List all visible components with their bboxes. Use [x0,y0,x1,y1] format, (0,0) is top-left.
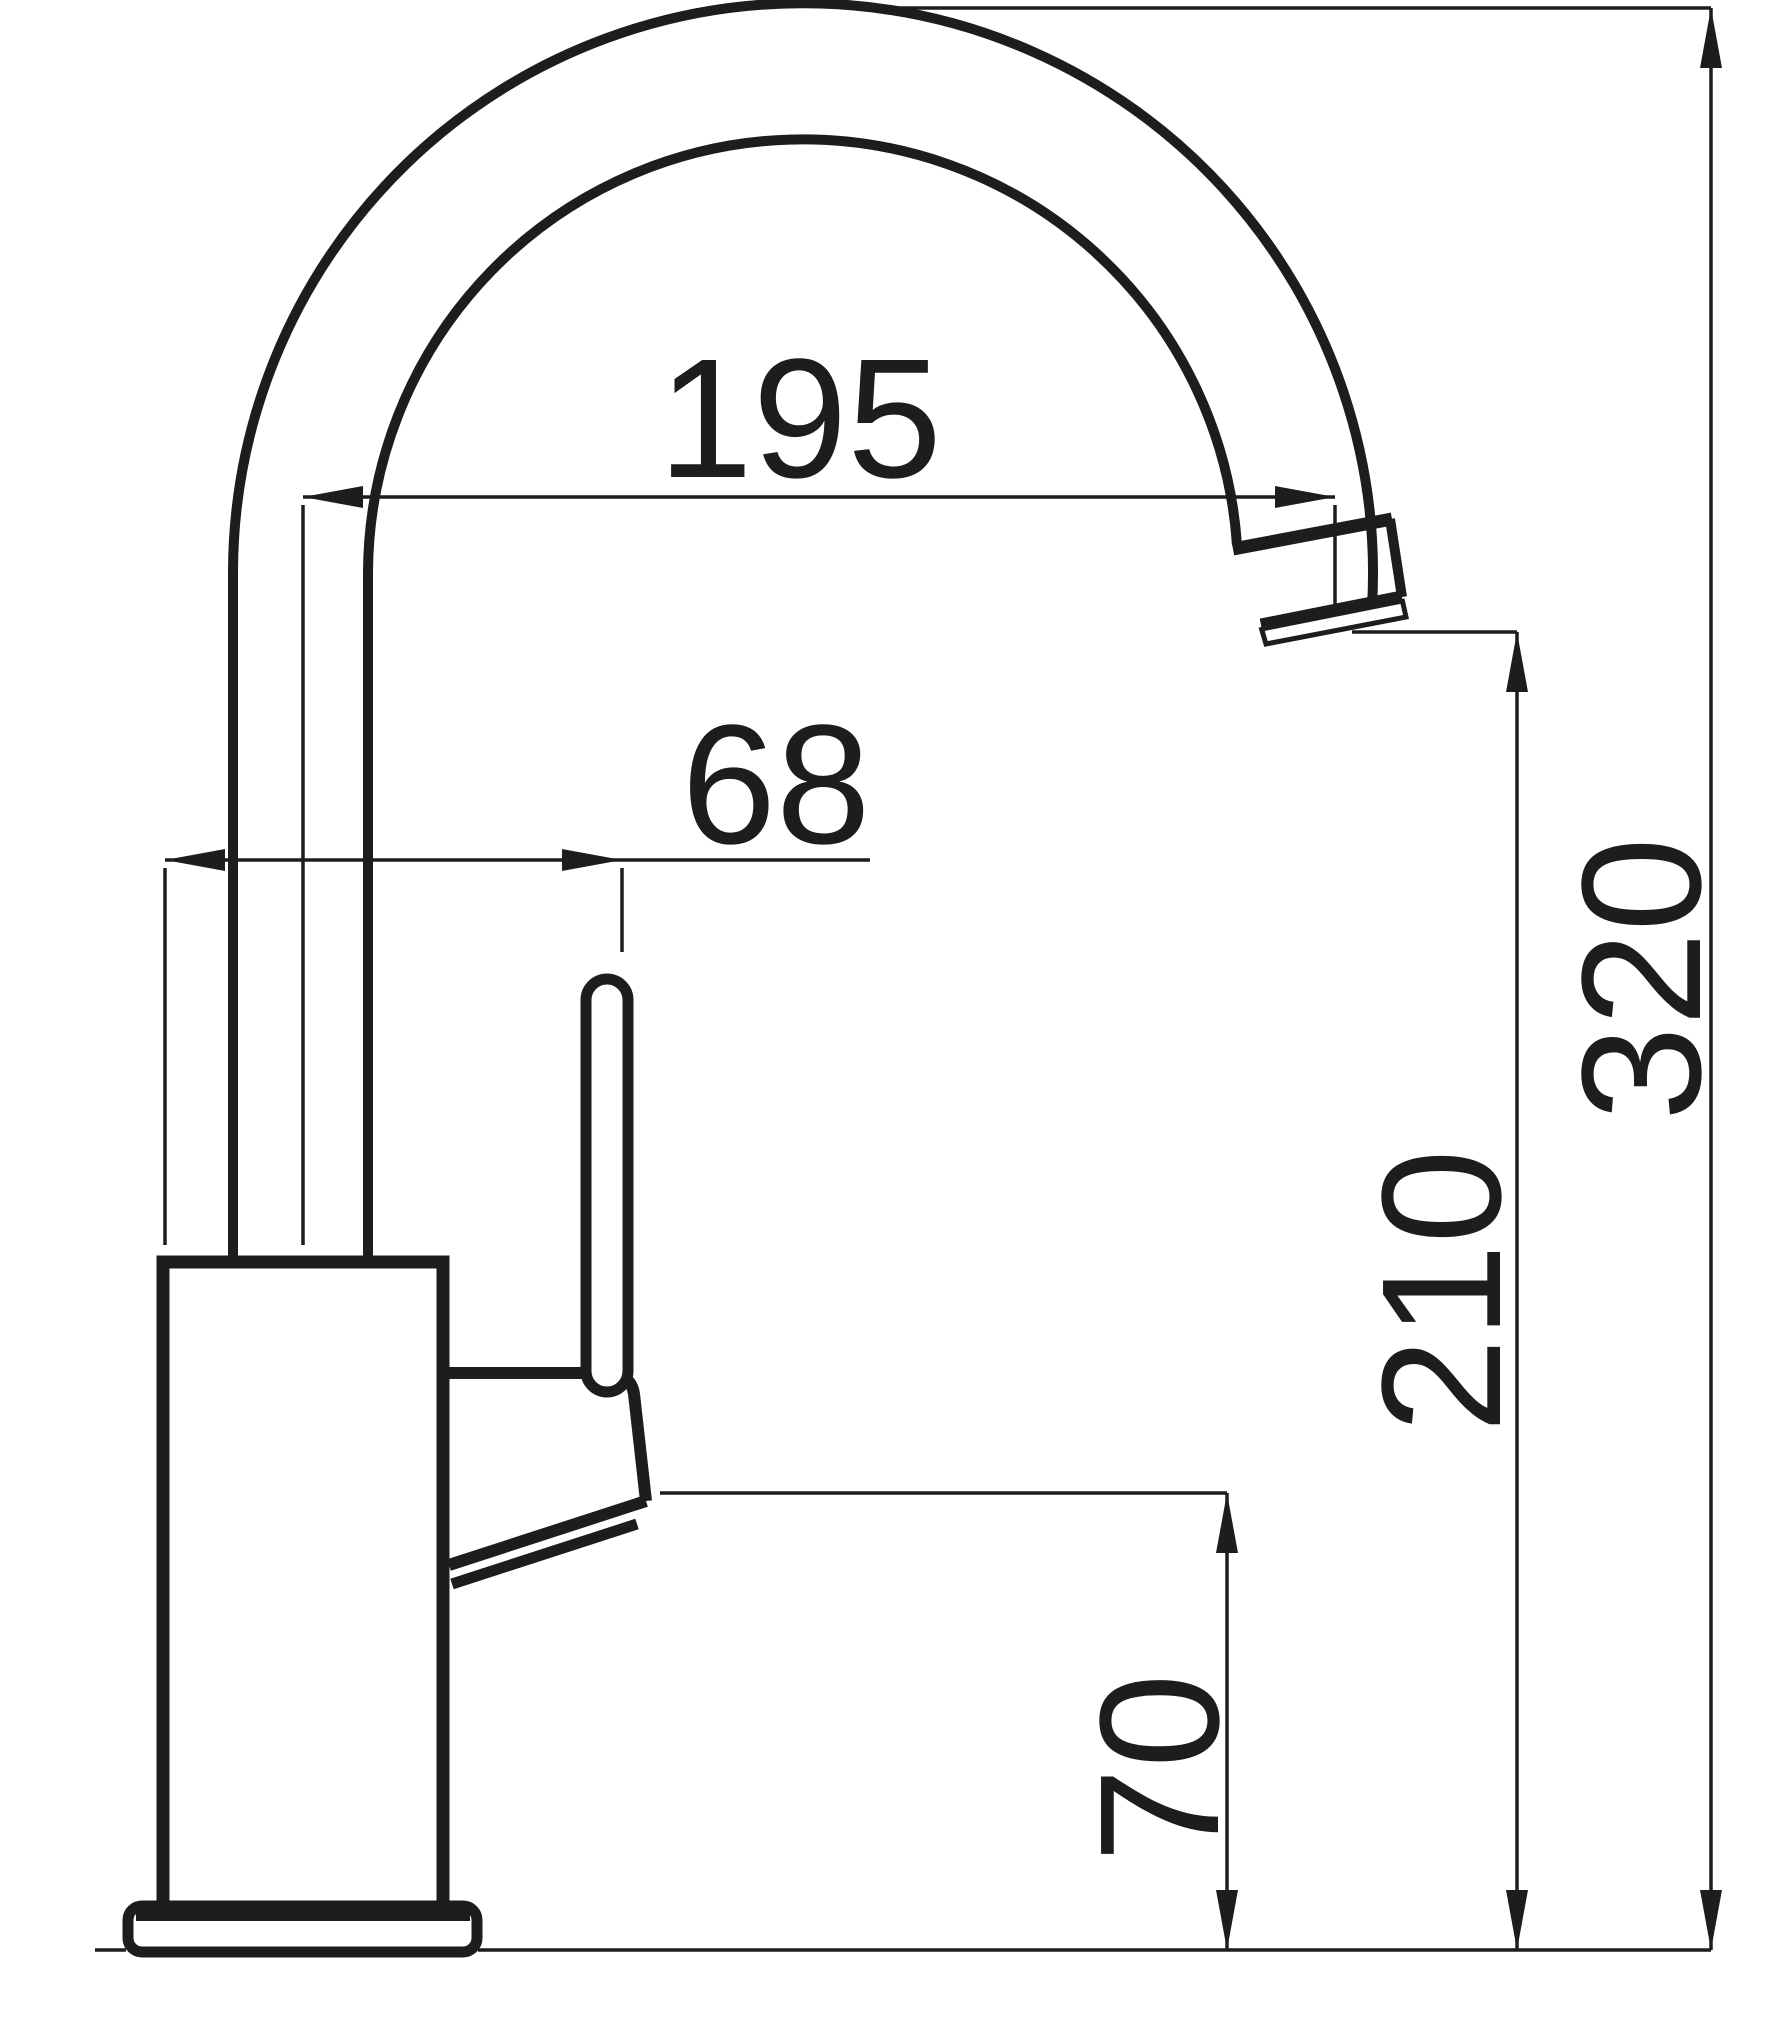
dim-320-arrow-bottom [1700,1890,1722,1950]
dim-label-total-height: 320 [1547,837,1737,1121]
body-outline [163,1262,443,1908]
dim-70-arrow-bottom [1216,1890,1238,1950]
spout-outer-contour [233,3,1373,1266]
dim-68-arrow-right [562,849,622,871]
dim-210-arrow-bottom [1506,1890,1528,1950]
dim-210-arrow-top [1506,632,1528,692]
dim-70-arrow-top [1216,1493,1238,1553]
dimension-group: 195 68 320 210 70 [95,8,1737,1950]
aerator-right-edge [1390,519,1402,597]
dim-label-handle-offset: 68 [681,690,870,880]
faucet-outline-group [128,3,1406,1952]
dim-68-arrow-left [165,849,225,871]
handle-lever [586,979,628,1392]
dim-label-outlet-height: 210 [1347,1149,1537,1433]
dim-label-base-height: 70 [1065,1673,1255,1862]
dim-195-arrow-left [303,486,363,508]
faucet-technical-drawing: 195 68 320 210 70 [0,0,1784,2035]
drawing-sheet: 195 68 320 210 70 [0,0,1784,2035]
dim-195-arrow-right [1275,486,1335,508]
dim-label-spout-reach: 195 [658,324,942,514]
dim-320-arrow-top [1700,8,1722,68]
